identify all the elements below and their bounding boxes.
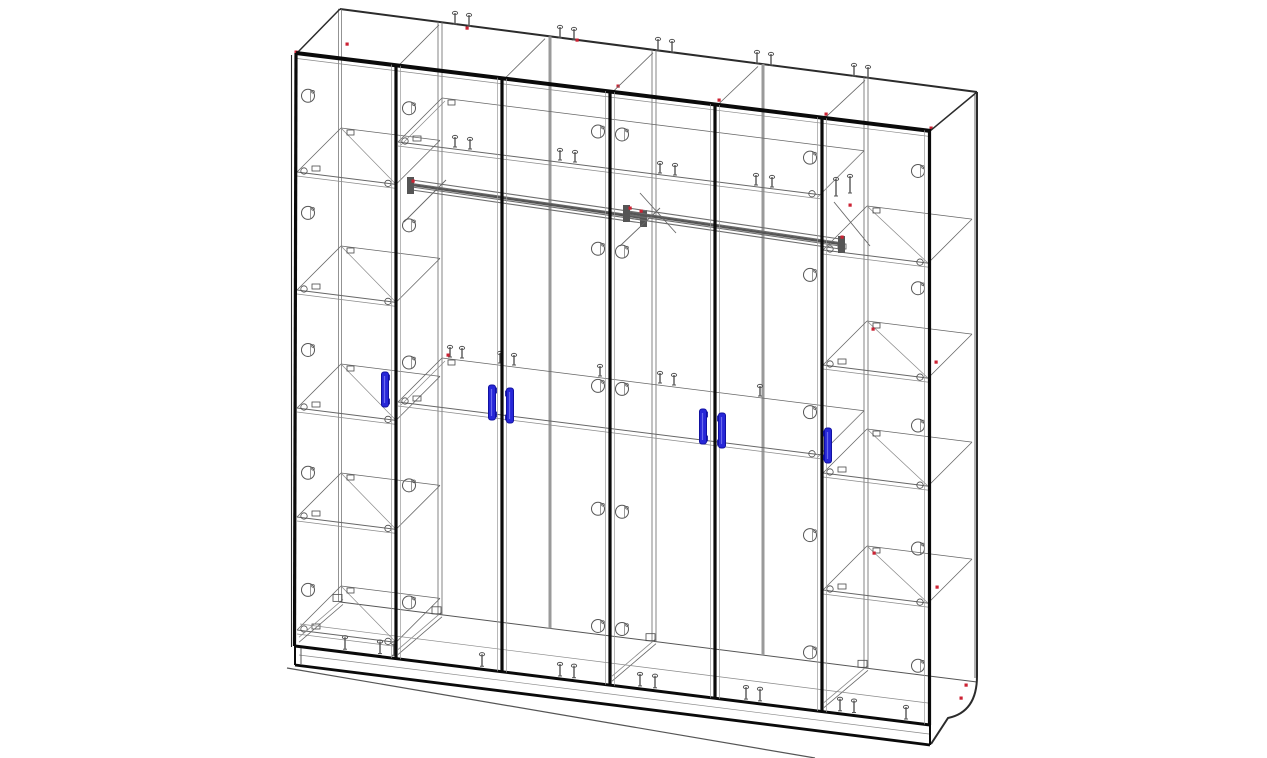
drawing-canvas bbox=[0, 0, 1267, 758]
door-handle-2 bbox=[489, 385, 497, 420]
hanging-rods bbox=[404, 177, 870, 253]
interior-shelves bbox=[297, 98, 972, 646]
door-handle-3 bbox=[506, 388, 514, 423]
back-panel-lines bbox=[339, 9, 978, 682]
carcass-outline bbox=[296, 9, 977, 744]
door-handle-4 bbox=[700, 409, 708, 444]
door-handle-1 bbox=[382, 372, 390, 407]
wardrobe-assembly-drawing bbox=[0, 0, 1267, 758]
door-handle-5 bbox=[718, 413, 726, 448]
door-handle-6 bbox=[824, 428, 832, 463]
